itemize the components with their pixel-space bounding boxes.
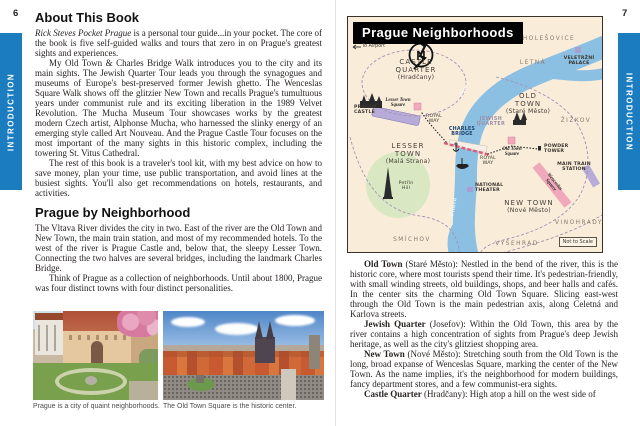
label-old-town: OLD TOWN (Staré Město) (493, 93, 563, 116)
label-old-town-square: Old Town Square (497, 147, 527, 158)
tyn-church-silhouette (255, 337, 275, 363)
left-page-text: About This Book Rick Steves Pocket Pragu… (35, 10, 322, 293)
label-royal-way-west: ROYAL WAY (423, 114, 445, 125)
neighborhood-paragraph: Old Town (Staré Město): Nestled in the b… (350, 259, 618, 319)
label-new-town: NEW TOWN (Nové Město) (484, 200, 574, 215)
neighborhood-paragraph: Jewish Quarter (Josefov): Within the Old… (350, 319, 618, 349)
book-title-italic: Rick Steves Pocket Prague (35, 28, 131, 38)
prague-neighborhoods-map: N Prague Neighborhoods To Airport HOLEŠO… (347, 16, 603, 253)
district-label-vinohrady: VINOHRADY (555, 220, 603, 226)
book-spread: 6 7 INTRODUCTION INTRODUCTION About This… (0, 0, 640, 426)
label-main-train-station: MAIN TRAIN STATION (557, 162, 591, 173)
label-lesser-town-square: Lesser Town Square (380, 98, 416, 109)
paragraph: The rest of this book is a traveler's to… (35, 158, 322, 198)
label-jewish-quarter: JEWISH QUARTER (474, 117, 508, 128)
paragraph: The Vltava River divides the city in two… (35, 223, 322, 273)
chapter-tab-left: INTRODUCTION (0, 33, 22, 190)
label-powder-tower: POWDER TOWER (544, 144, 570, 155)
neighborhood-paragraph: Castle Quarter (Hradčany): High atop a h… (350, 389, 618, 399)
section-title-about: About This Book (35, 10, 322, 25)
photo-caption: The Old Town Square is the historic cent… (163, 403, 296, 410)
national-theater-block (467, 187, 473, 192)
old-town-square-marker (508, 137, 515, 144)
map-title: Prague Neighborhoods (353, 22, 523, 44)
not-to-scale-badge: Not to Scale (559, 237, 597, 247)
to-airport-label: To Airport (362, 44, 385, 49)
right-page-text: Old Town (Staré Město): Nestled in the b… (350, 259, 618, 399)
label-royal-way-east: ROYAL WAY (477, 156, 499, 167)
chapter-tab-label: INTRODUCTION (625, 72, 634, 150)
paragraph: My Old Town & Charles Bridge Walk introd… (35, 58, 322, 158)
label-lesser-town: LESSER TOWN (Malá Strana) (378, 143, 438, 166)
river-south-arm (548, 73, 602, 76)
page-number-right: 7 (622, 8, 627, 19)
label-petrin-hill: Petřín Hill (395, 181, 417, 192)
veletrzni-palace-block (575, 47, 581, 53)
section-title-neighborhood: Prague by Neighborhood (35, 205, 322, 220)
river-island (446, 154, 455, 172)
chapter-tab-right: INTRODUCTION (618, 33, 640, 190)
district-label-letna: LETNÁ (520, 60, 546, 66)
photo-caption: Prague is a city of quaint neighborhoods… (33, 403, 160, 410)
photo-quaint-neighborhood (33, 311, 158, 400)
photo-old-town-square (163, 311, 324, 400)
page-number-left: 6 (13, 8, 18, 19)
district-label-smichov: SMÍCHOV (393, 237, 431, 243)
district-label-holesovice: HOLEŠOVICE (523, 36, 575, 42)
label-castle-quarter: CASTLE QUARTER (Hradčany) (383, 59, 449, 82)
label-national-theater: NATIONAL THEATER (475, 183, 507, 194)
neighborhood-paragraph: New Town (Nové Město): Stretching south … (350, 349, 618, 389)
page-gutter (335, 0, 336, 426)
label-charles-bridge: CHARLES BRIDGE (445, 127, 479, 138)
label-veletrzni-palace: VELETRŽNÍ PALACE (561, 56, 597, 67)
powder-tower-marker (538, 146, 541, 151)
chapter-tab-label: INTRODUCTION (7, 72, 16, 150)
district-label-vysehrad: VYŠEHRAD (495, 241, 538, 247)
paragraph: Think of Prague as a collection of neigh… (35, 273, 322, 293)
airport-arrow-icon (353, 45, 361, 49)
district-label-zizkov: ŽIŽKOV (561, 118, 592, 124)
paragraph: Rick Steves Pocket Prague is a personal … (35, 28, 322, 58)
